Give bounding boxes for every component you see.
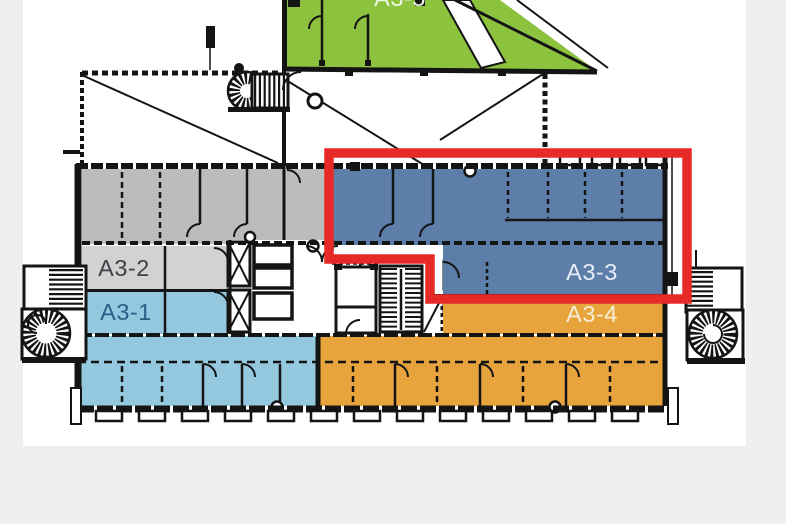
left-stair-tower: [22, 266, 86, 363]
column: [245, 232, 255, 242]
spiral-stair-left: [22, 309, 70, 357]
floorplan-view: A3-5: [0, 0, 786, 524]
blue-rooms-area: [332, 169, 663, 245]
shaft-room: [336, 267, 376, 307]
unit-a3-2-label: A3-2: [98, 255, 150, 281]
right-stair-tower: [686, 250, 745, 364]
unit-a3-2[interactable]: A3-2: [82, 246, 228, 290]
unit-a3-3-area[interactable]: [443, 245, 663, 295]
elevator-car: [254, 245, 292, 265]
unit-a3-1[interactable]: A3-1: [82, 292, 228, 334]
unit-a3-5-label: A3-5: [374, 0, 426, 11]
unit-a3-4-label: A3-4: [566, 301, 618, 327]
unit-a3-3-label: A3-3: [566, 259, 618, 285]
elevator-shaft: [228, 242, 292, 332]
unit-a3-1-rooms-south[interactable]: [78, 336, 318, 406]
gray-rooms-area: [82, 169, 330, 244]
column: [308, 94, 322, 108]
floorplan-svg: A3-5: [0, 0, 786, 524]
unit-a3-1-label: A3-1: [100, 299, 152, 325]
wing-bottom-wall: [283, 69, 597, 72]
gray-zone: [82, 166, 330, 244]
bottom-rooms: [78, 336, 665, 413]
unit-a3-3[interactable]: A3-3: [443, 245, 678, 295]
elevator-car: [254, 293, 292, 319]
spiral-stair-right: [689, 310, 737, 358]
elevator-car: [254, 268, 292, 288]
column: [234, 63, 244, 73]
wall-stub: [206, 26, 215, 48]
